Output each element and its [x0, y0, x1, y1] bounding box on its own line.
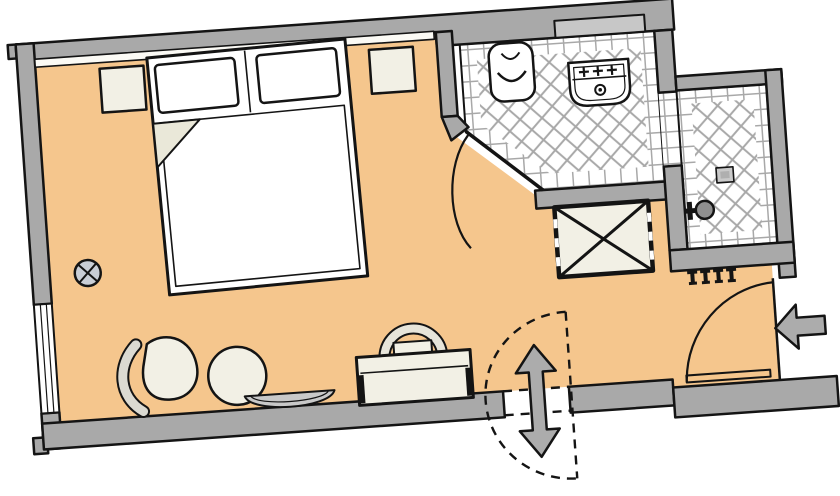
double-bed [147, 39, 368, 295]
desk [356, 350, 473, 406]
washbasin [568, 59, 631, 107]
toilet-body [488, 41, 536, 102]
shower-drain-inner [720, 171, 729, 179]
wall-bottom-mid-segment [569, 379, 675, 412]
toilet [488, 41, 536, 102]
shower-valve-knob [695, 200, 714, 219]
floor-plan-canvas [0, 0, 840, 496]
outlet-symbol [74, 259, 102, 287]
desk-top [356, 350, 473, 406]
floor-plan-page [0, 0, 840, 496]
pillow-right [256, 48, 340, 103]
nightstand-left [100, 66, 147, 113]
nightstand-right [369, 47, 416, 94]
pillow-left [155, 58, 239, 113]
wardrobe [552, 201, 655, 278]
wall-bathroom-shower-upper [654, 30, 676, 93]
